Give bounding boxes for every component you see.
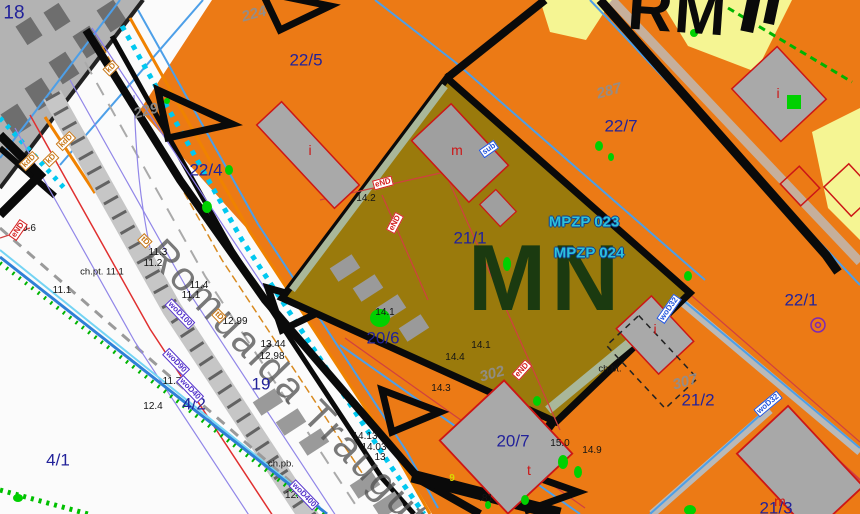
ghost-parcel-302: 302	[478, 364, 506, 385]
elev-11-1b: 11.1	[53, 286, 72, 296]
elev-11-1a: 11.1	[182, 291, 201, 301]
elev-14-1b: 14.1	[471, 341, 490, 351]
elev-14-2: 14.2	[356, 194, 375, 204]
parcel-22-7: 22/7	[604, 118, 637, 135]
elev-81: .81	[479, 494, 493, 504]
building-use-i-2: i	[776, 86, 779, 100]
elev-14-3: 14.3	[431, 384, 450, 394]
building-use-m-2: m	[774, 494, 786, 508]
elev-12-4: 12.4	[143, 402, 162, 412]
utility-wod90: woD90	[162, 348, 190, 376]
note-ch-pb: ch.pb.	[268, 459, 294, 469]
utility-end-2: eND	[372, 176, 394, 191]
elev-13: 13	[374, 453, 385, 463]
road-class-kd-a: kD	[102, 59, 119, 76]
parcel-20-6: 20/6	[366, 330, 399, 347]
ghost-parcel-229: 229	[132, 101, 160, 122]
plan-ref-024: MPZP 024	[554, 246, 625, 261]
street-name: Romualda Traugutta	[139, 232, 464, 514]
parcel-21-2: 21/2	[681, 392, 714, 409]
utility-end-4: eND	[512, 359, 533, 381]
plan-ref-023: MPZP 023	[549, 215, 620, 230]
parcel-4-1: 4/1	[46, 452, 70, 469]
map-canvas[interactable]: RMMNRomualda TrauguttaMPZP 023MPZP 02418…	[0, 0, 860, 514]
building-use-t: t	[527, 463, 531, 477]
road-class-kd-c: kD	[42, 150, 59, 167]
road-class-kdd-d: kdD	[56, 131, 77, 151]
ghost-parcel-307: 307	[671, 372, 699, 393]
elev-12-98: 12.98	[259, 352, 284, 362]
map-labels: RMMNRomualda TrauguttaMPZP 023MPZP 02418…	[0, 0, 860, 514]
parcel-22-1: 22/1	[784, 292, 817, 309]
building-use-m-1: m	[451, 143, 463, 157]
elev-14-13: 14.13	[352, 432, 377, 442]
building-use-i-1: i	[308, 143, 311, 157]
elev-14-9: 14.9	[582, 446, 601, 456]
parcel-21-1: 21/1	[453, 230, 486, 247]
road-class-kdd-b: kdD	[19, 151, 40, 171]
ghost-parcel-287: 287	[595, 81, 623, 102]
elev-15-0: 15.0	[550, 439, 569, 449]
note-ch-pt: ch.pt. 11.1	[80, 267, 124, 277]
building-use-i-3: i	[653, 322, 656, 336]
parcel-20-7: 20/7	[496, 433, 529, 450]
parcel-19: 19	[252, 376, 271, 393]
elev-12-99: 12.99	[222, 317, 247, 327]
ghost-parcel-224: 224	[240, 4, 268, 25]
utility-wod32-a: woD32	[656, 294, 681, 324]
utility-sub: sub	[479, 140, 500, 159]
utility-end-3: eND	[386, 212, 404, 234]
elev-14-1a: 14.1	[375, 308, 394, 318]
elev-14-4: 14.4	[445, 353, 464, 363]
note-ch-bt: ch.bt.	[598, 364, 621, 374]
parcel-18: 18	[3, 4, 24, 23]
utility-wod32-b: woD32	[753, 391, 782, 418]
elev-13-44: 13.44	[260, 340, 285, 350]
note-9: 9	[449, 474, 455, 484]
elev-11-3: 11.3	[149, 248, 168, 258]
zone-label-rm: RM	[626, 0, 731, 46]
parcel-22-5: 22/5	[289, 52, 322, 69]
elev-11-2: 11.2	[144, 259, 163, 269]
parcel-22-4: 22/4	[189, 162, 222, 179]
